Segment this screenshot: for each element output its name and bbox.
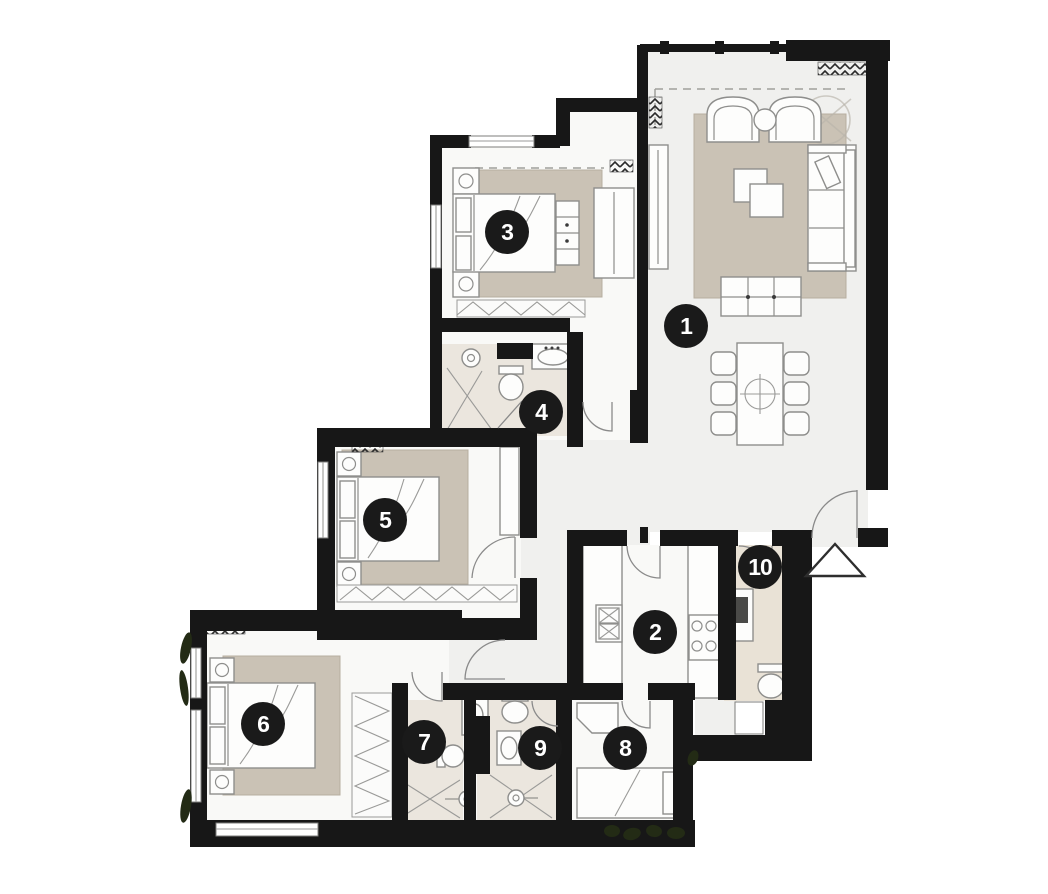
room-marker-2: 2 [633, 610, 677, 654]
room-marker-10: 10 [738, 545, 782, 589]
kitchen-sink-icon [596, 605, 622, 642]
room-marker-4: 4 [519, 390, 563, 434]
room-marker-3: 3 [485, 210, 529, 254]
nightstand [210, 770, 234, 794]
sofa [808, 145, 856, 271]
toilet-icon [499, 366, 523, 400]
shower-icon [462, 349, 480, 367]
armchair [769, 97, 821, 142]
room-marker-7: 7 [402, 720, 446, 764]
bedroom3-bench [556, 201, 579, 265]
wardrobe [457, 300, 585, 317]
room-marker-8: 8 [603, 726, 647, 770]
wardrobe [337, 585, 517, 602]
nightstand [337, 562, 361, 586]
nightstand [337, 452, 361, 476]
coffee-table [750, 184, 783, 217]
wardrobe [352, 693, 392, 817]
dining-set [711, 343, 809, 445]
shower-icon [508, 790, 524, 806]
nightstand [210, 658, 234, 682]
floor-plan: 12345678910 [0, 0, 1048, 894]
single-bed [577, 768, 687, 818]
closet [500, 447, 519, 535]
room-marker-9: 9 [518, 726, 562, 770]
room-marker-5: 5 [363, 498, 407, 542]
room-marker-1: 1 [664, 304, 708, 348]
armchair [707, 97, 759, 142]
nightstand [453, 168, 479, 194]
nightstand [453, 271, 479, 297]
toilet-icon [758, 664, 784, 698]
entrance-arrow-icon [806, 544, 864, 576]
tv-console [721, 277, 801, 316]
stove-icon [689, 615, 719, 660]
room-marker-6: 6 [241, 702, 285, 746]
service-door [735, 702, 763, 734]
side-table [754, 109, 776, 131]
